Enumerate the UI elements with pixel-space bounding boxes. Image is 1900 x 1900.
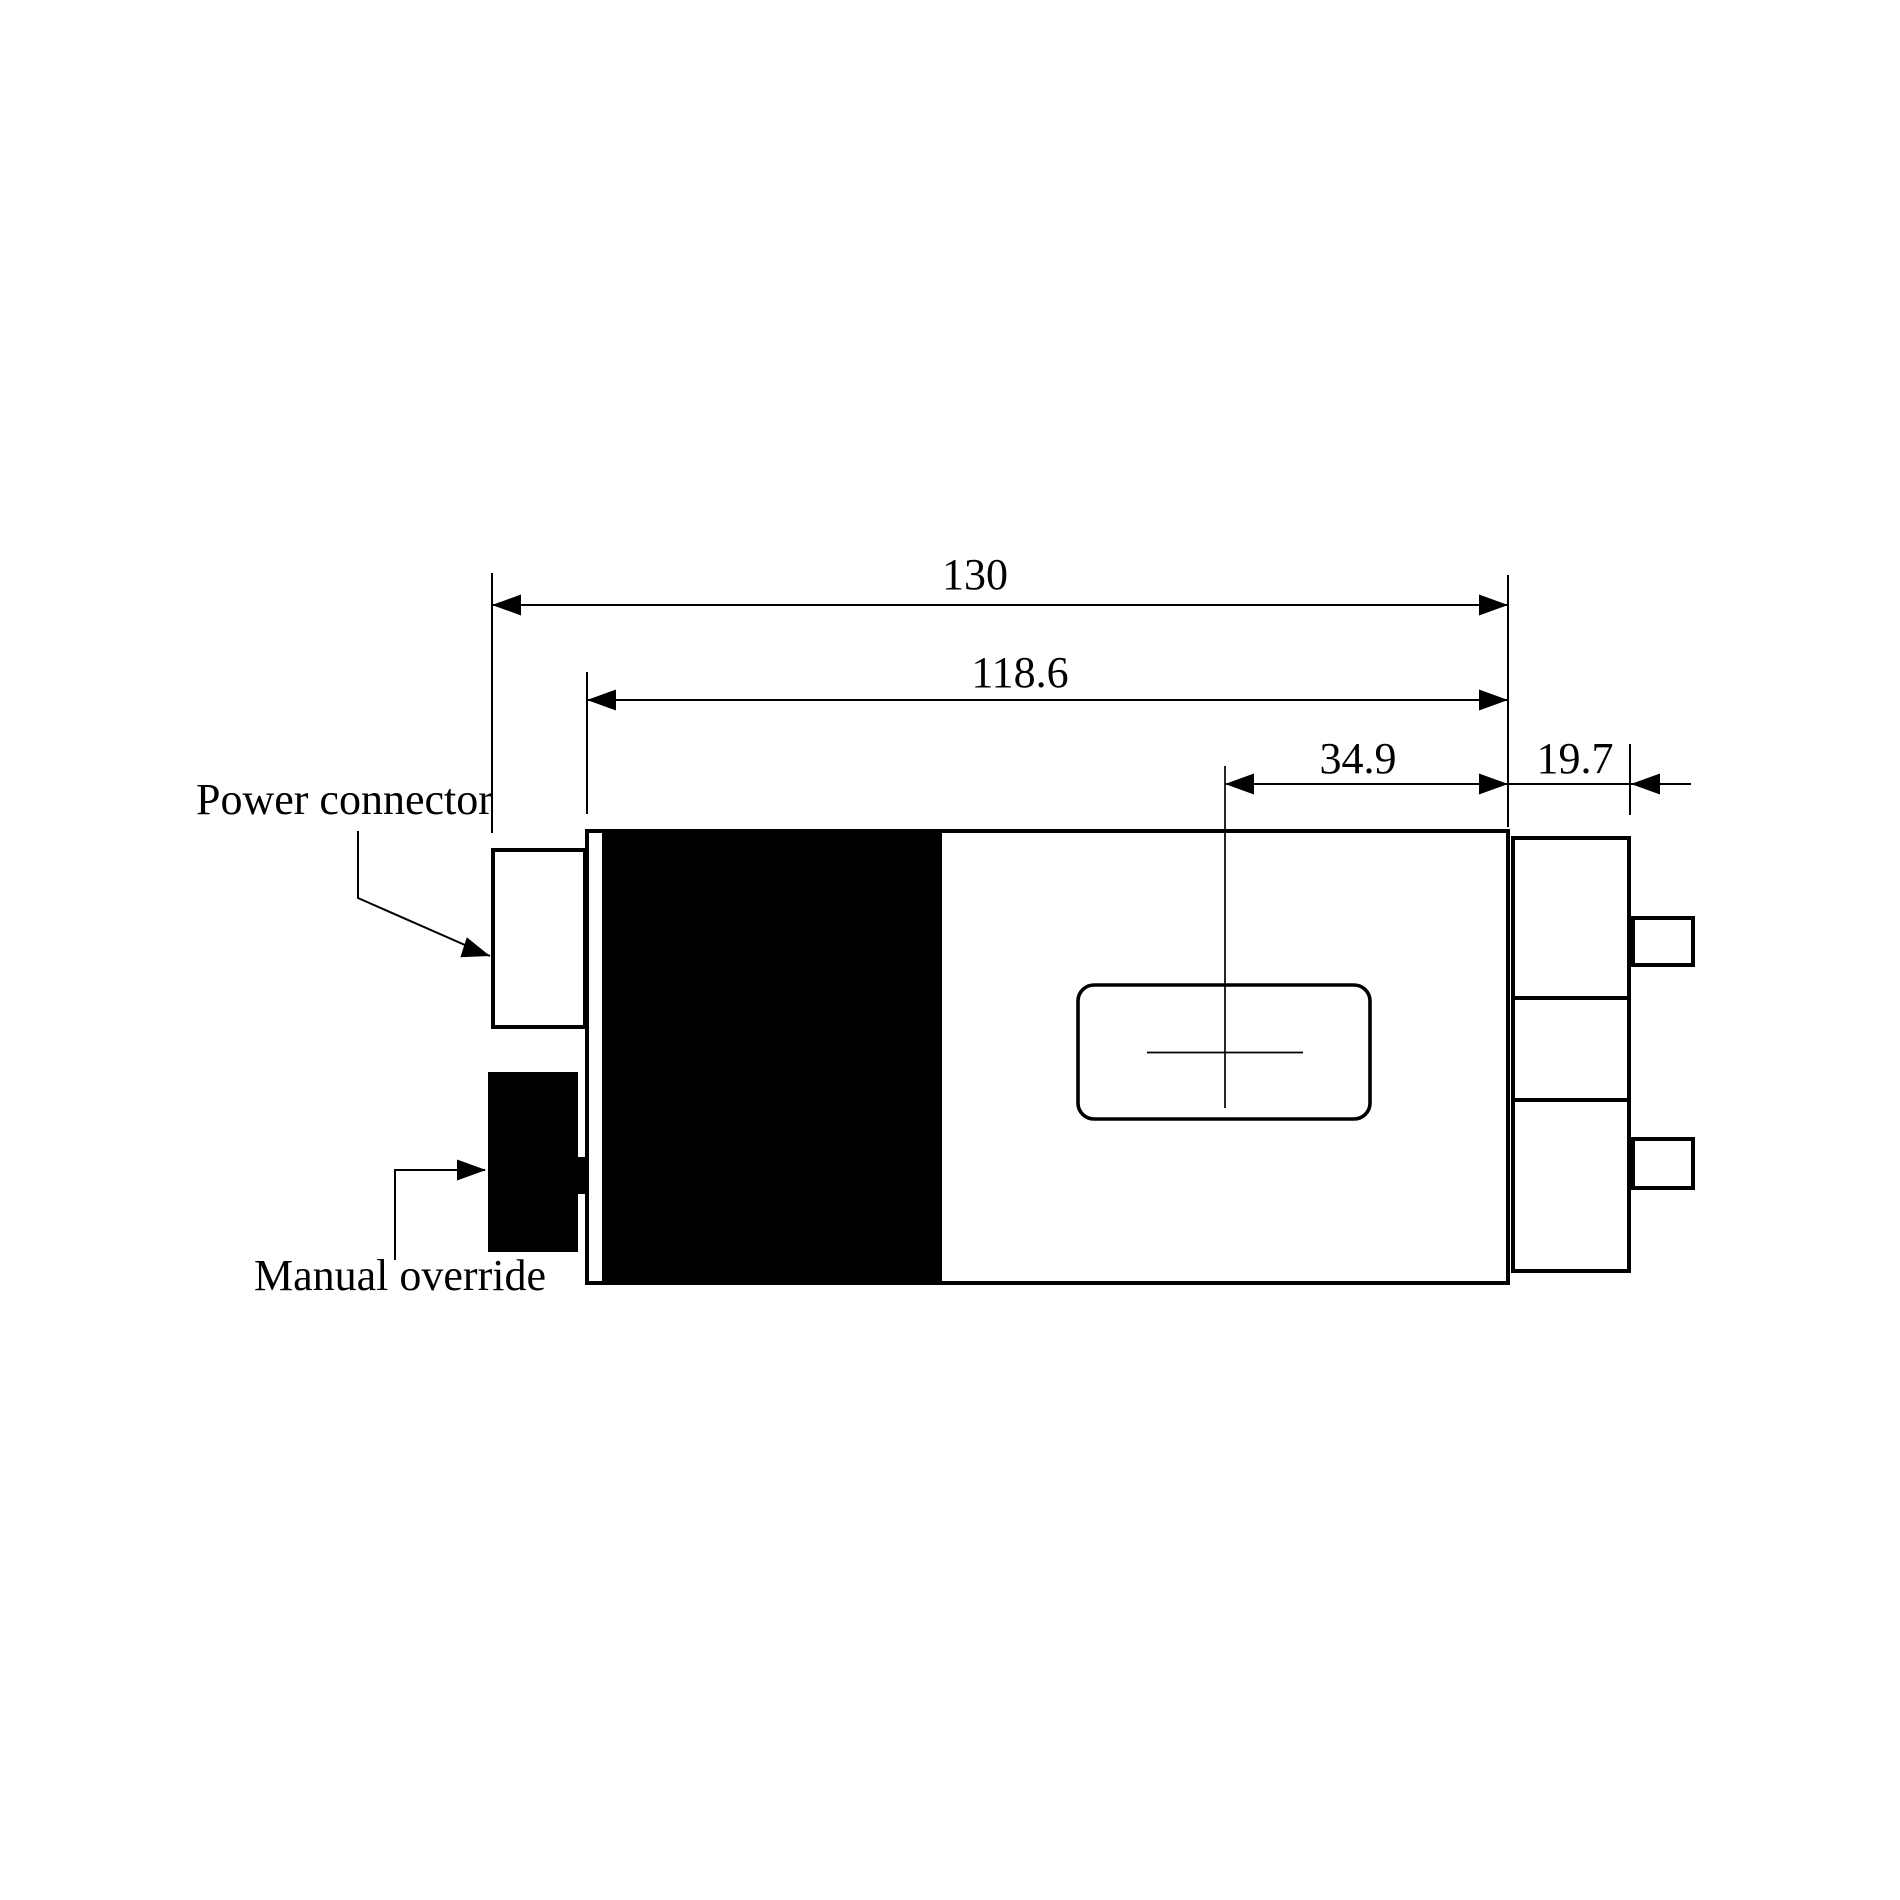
svg-text:19.7: 19.7 <box>1537 734 1614 783</box>
svg-text:34.9: 34.9 <box>1320 734 1397 783</box>
svg-text:Power connector: Power connector <box>196 775 493 824</box>
svg-text:118.6: 118.6 <box>971 648 1068 697</box>
svg-text:130: 130 <box>942 550 1008 599</box>
svg-text:Manual override: Manual override <box>254 1251 546 1300</box>
